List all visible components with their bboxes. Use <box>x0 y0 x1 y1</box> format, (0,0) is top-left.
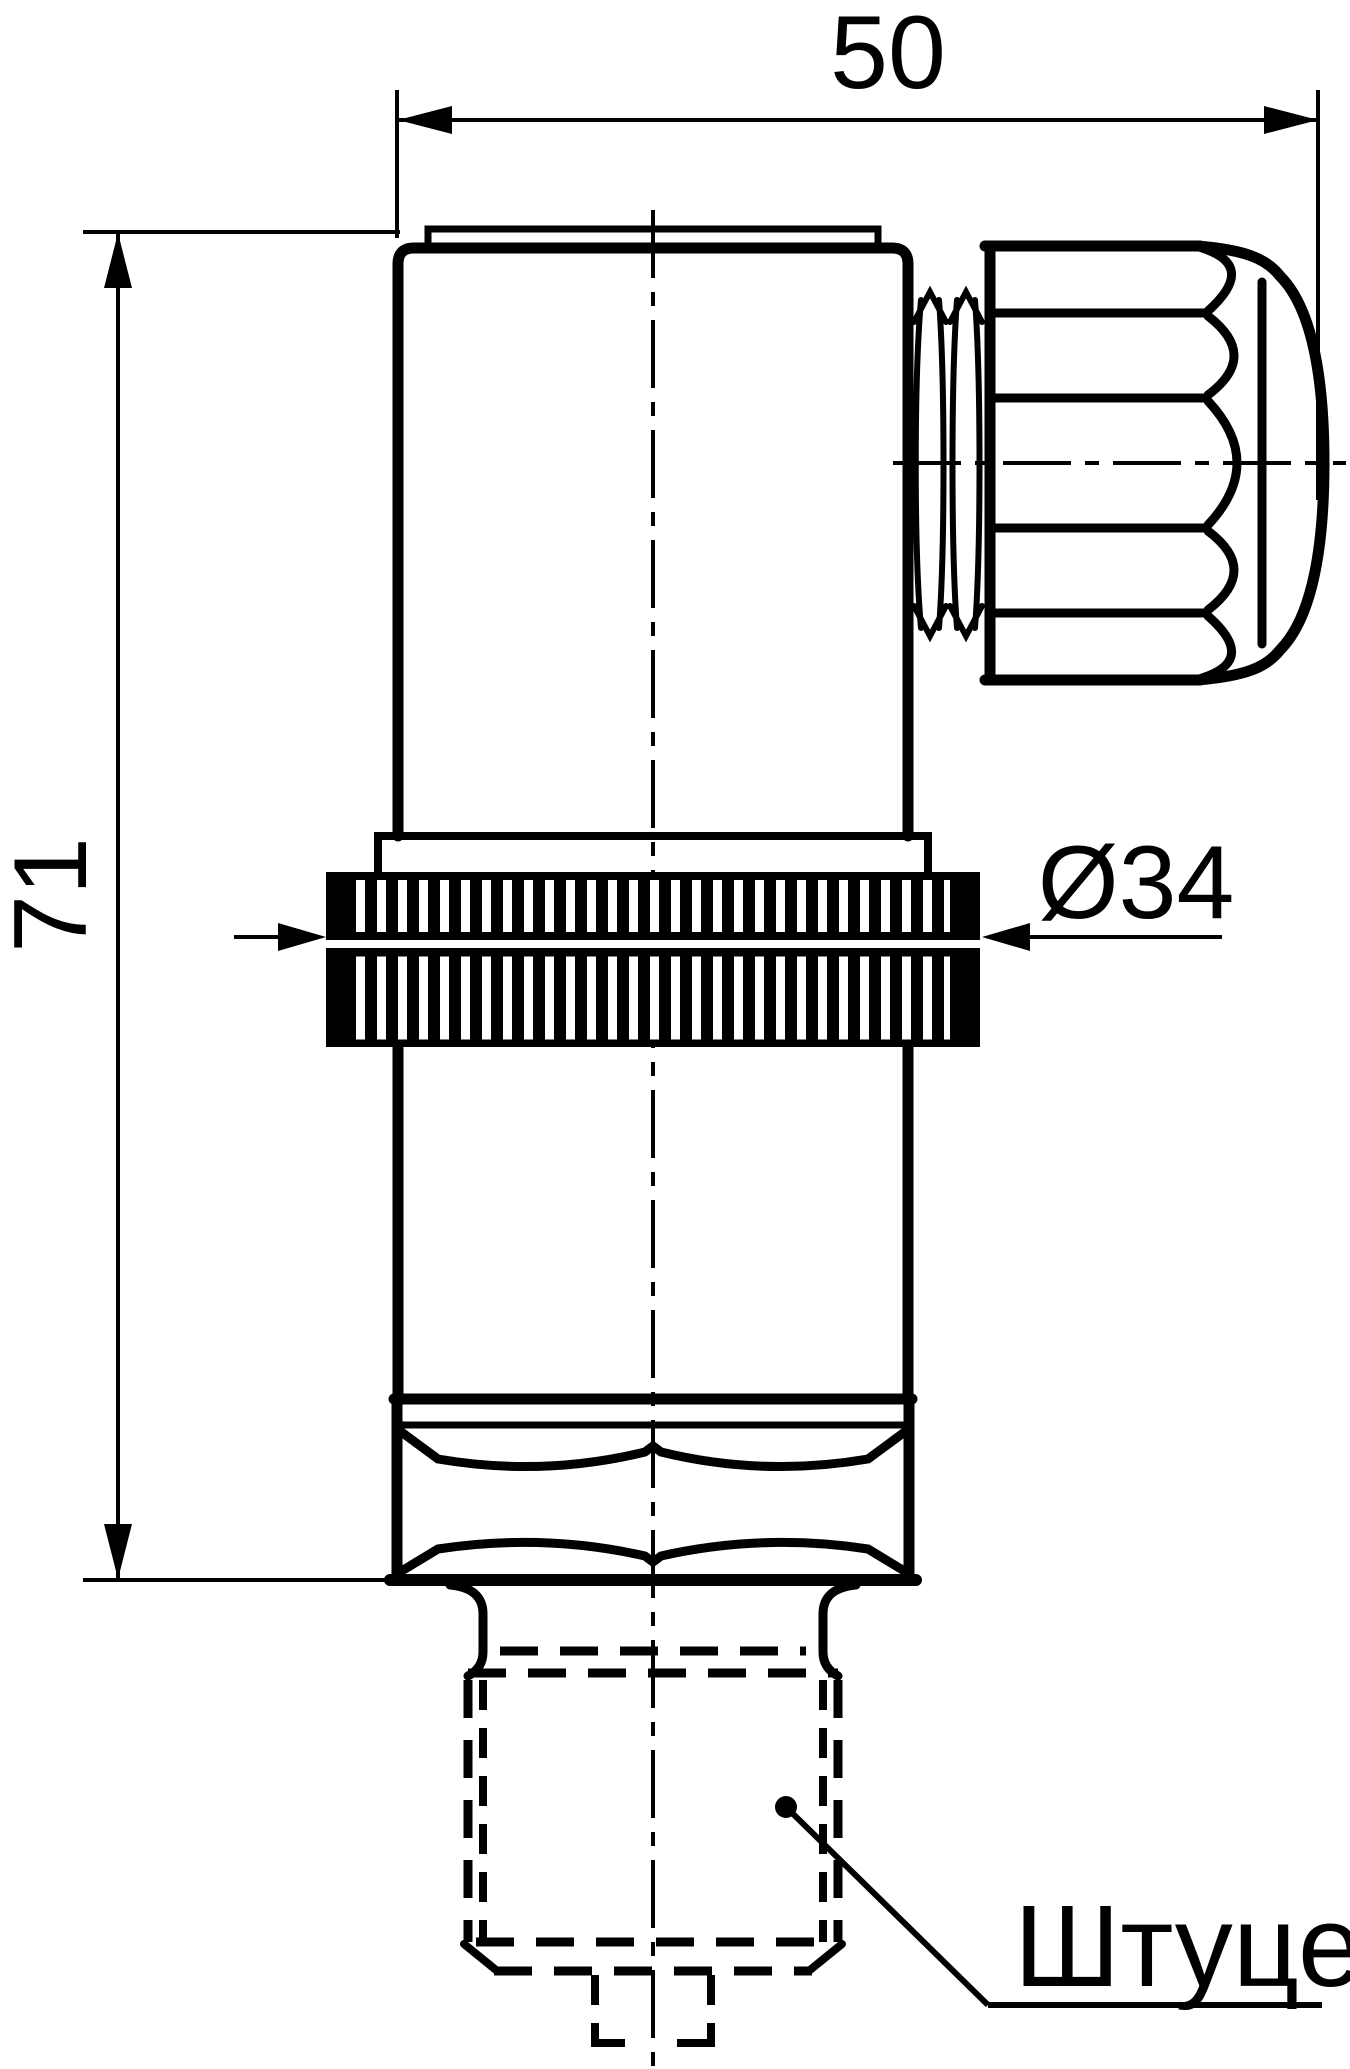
width-arrow-right-icon <box>1264 106 1318 134</box>
gland-chamfer-arc <box>1208 316 1234 395</box>
width-arrow-left-icon <box>398 106 452 134</box>
height-arrow-up-icon <box>104 233 132 288</box>
neck-left-profile <box>450 1585 483 1676</box>
knurled-ring <box>326 836 980 1047</box>
diameter-arrow-right-icon <box>982 923 1030 951</box>
height-dimension-value: 71 <box>0 837 109 953</box>
height-arrow-down-icon <box>104 1524 132 1579</box>
gland-chamfer-arc <box>1202 248 1232 311</box>
fitting-chamfer-left <box>464 1944 496 1970</box>
diameter-dimension-value: Ø34 <box>1038 825 1235 941</box>
gland-chamfer-arc <box>1208 531 1234 610</box>
sensor-technical-drawing: 50 71 <box>0 0 1350 2069</box>
thread-crest-top <box>914 292 982 322</box>
diameter-arrow-left-icon <box>278 923 326 951</box>
neck-right-profile <box>823 1585 856 1676</box>
fitting-label: Штуцер <box>1014 1881 1350 2011</box>
fitting-chamfer-right <box>810 1944 842 1970</box>
drawing-sheet: 50 71 <box>0 0 1350 2069</box>
gland-chamfer-arc <box>1202 616 1232 678</box>
leader-line <box>786 1807 988 2005</box>
thread-crest-bottom <box>914 606 982 636</box>
fitting-callout: Штуцер <box>775 1796 1350 2011</box>
width-dimension-value: 50 <box>830 0 946 111</box>
gland-chamfer-arc <box>1208 401 1237 525</box>
